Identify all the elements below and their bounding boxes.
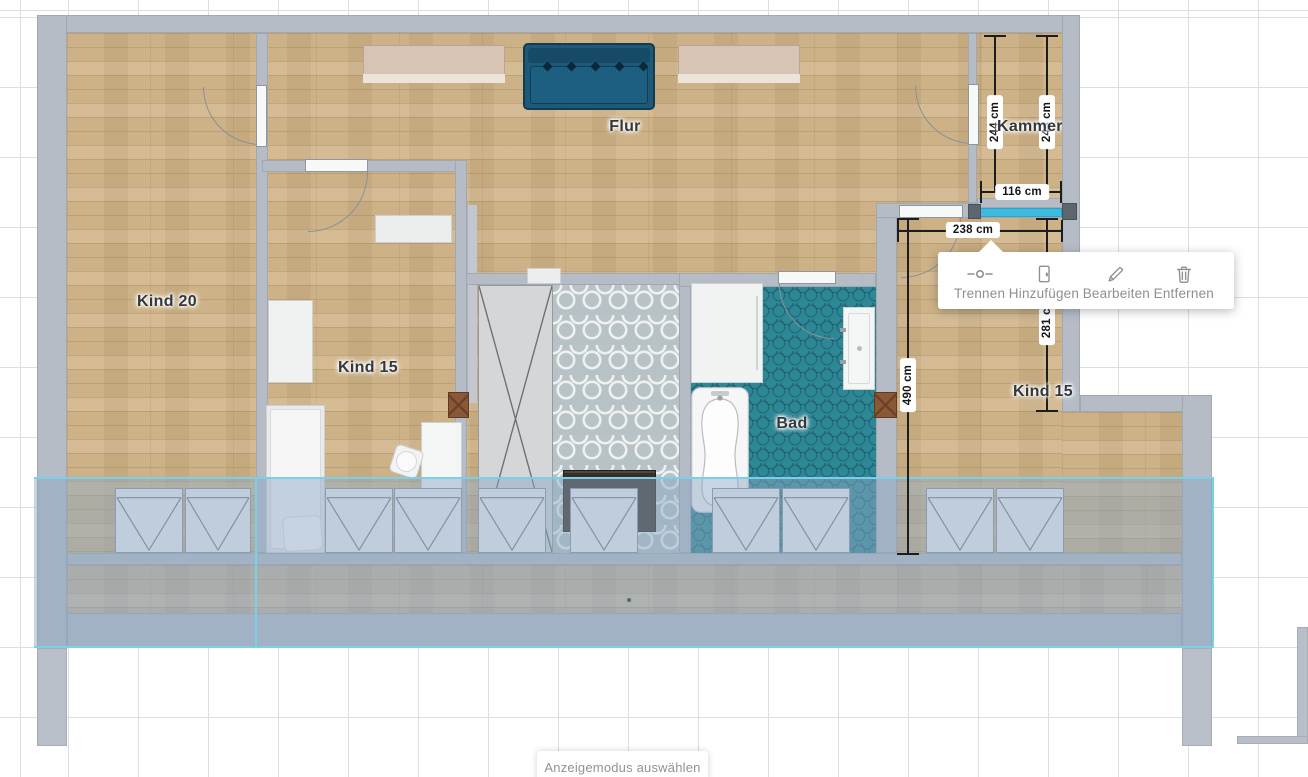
sideboard-left[interactable] — [363, 45, 505, 83]
popup-item-entfernen[interactable]: Entfernen — [1154, 264, 1214, 301]
wall-edit-popup: Trennen Hinzufügen Bearbeiten — [938, 252, 1234, 309]
dimension-label[interactable]: 238 cm — [946, 222, 1000, 238]
trash-icon — [1174, 264, 1194, 284]
floorplan-canvas[interactable]: 244 cm 244 cm 116 cm 238 cm 281 cm 490 c… — [0, 0, 1308, 777]
sofa[interactable] — [523, 43, 655, 110]
wall-handle-left[interactable] — [968, 204, 981, 219]
display-mode-button[interactable]: Anzeigemodus auswählen — [537, 751, 708, 777]
wall-exterior-top[interactable] — [37, 15, 1080, 33]
door-kind15mid[interactable] — [305, 159, 368, 172]
room-label-kind20: Kind 20 — [137, 293, 197, 311]
selected-wall[interactable] — [980, 208, 1062, 217]
roof-slope-overlay — [34, 477, 1214, 648]
popup-item-label: Entfernen — [1154, 286, 1214, 301]
popup-item-trennen[interactable]: Trennen — [954, 264, 1005, 301]
bath-cabinet[interactable] — [691, 283, 763, 383]
room-label-kind15-mid: Kind 15 — [338, 359, 398, 377]
pouf-bad[interactable] — [874, 392, 897, 418]
faucet — [840, 328, 846, 332]
roof-guide-line — [255, 477, 257, 648]
sofa-seat — [530, 66, 648, 104]
room-label-kind15-right: Kind 15 — [1013, 383, 1073, 401]
ghost-wall-corner-horizontal — [1237, 736, 1308, 744]
sideboard-right[interactable] — [678, 45, 800, 83]
bath-vanity[interactable] — [843, 307, 875, 390]
popup-item-hinzufuegen[interactable]: Hinzufügen — [1009, 264, 1079, 301]
popup-item-label: Trennen — [954, 286, 1005, 301]
ghost-wall-left-leg — [37, 648, 67, 746]
room-label-kammer-clip: Kammer — [979, 113, 1062, 141]
sliding-panel[interactable] — [467, 205, 477, 403]
drain-dot — [857, 346, 862, 351]
door-bad[interactable] — [778, 271, 836, 284]
wall-closet-top[interactable] — [466, 273, 680, 285]
cabinet-handle — [756, 296, 758, 370]
room-label-bad: Bad — [776, 415, 807, 433]
popup-item-label: Hinzufügen — [1009, 286, 1079, 301]
split-wall-icon — [967, 264, 993, 284]
door-kind20[interactable] — [256, 85, 267, 147]
wall-shelf-closet[interactable] — [527, 268, 561, 284]
pencil-icon — [1106, 264, 1126, 284]
popup-item-bearbeiten[interactable]: Bearbeiten — [1083, 264, 1150, 301]
room-label-flur: Flur — [609, 118, 640, 136]
dimension-label[interactable]: 116 cm — [995, 184, 1049, 200]
door-kind15right[interactable] — [899, 205, 963, 218]
ghost-wall-corner-vertical — [1297, 627, 1308, 744]
door-kammer[interactable] — [968, 84, 979, 145]
wardrobe-kind15mid[interactable] — [268, 300, 313, 383]
popup-item-label: Bearbeiten — [1083, 286, 1150, 301]
dimension-label[interactable]: 490 cm — [900, 358, 916, 412]
ghost-wall-right-leg — [1182, 648, 1212, 746]
door-icon — [1034, 264, 1054, 284]
wall-handle-right[interactable] — [1062, 203, 1077, 220]
chair-seat — [393, 448, 419, 474]
sofa-backrest — [528, 48, 650, 63]
room-label-kammer: Kammer — [997, 118, 1062, 136]
pouf-kind15mid[interactable] — [448, 392, 469, 418]
shelf-kind15mid[interactable] — [375, 215, 452, 243]
faucet — [840, 360, 846, 364]
